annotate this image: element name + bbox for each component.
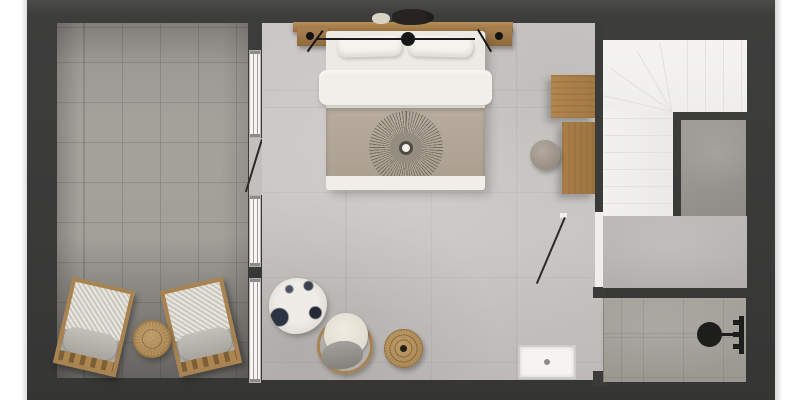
shower-tray <box>518 345 576 379</box>
plant-decor <box>392 9 434 25</box>
desk-upper-tier <box>551 75 595 118</box>
room-landing <box>681 120 746 216</box>
pendant-light <box>401 32 415 46</box>
window-section-1 <box>249 50 261 138</box>
page-margin-right <box>775 0 800 400</box>
wall-stub-upper <box>593 287 605 298</box>
partition-wall <box>595 23 603 213</box>
duvet-fold <box>319 70 492 105</box>
window-section-2 <box>249 195 261 267</box>
stair-treads-horizontal <box>603 118 673 214</box>
stair-treads-vertical <box>687 40 747 112</box>
vase-decor <box>372 13 390 24</box>
desk-lower-tier <box>562 122 595 194</box>
shower-drain <box>544 359 550 365</box>
sunburst-center <box>399 141 413 155</box>
room-bathroom <box>603 298 746 382</box>
bed-foot-sheet <box>326 176 485 190</box>
shower-mixer-knob <box>733 332 740 337</box>
window-section-3 <box>249 278 261 383</box>
nightstand-right-lamp <box>495 32 503 40</box>
nightstand-left-lamp <box>306 32 314 40</box>
hall-door-opening <box>595 212 603 288</box>
floor-plan-render <box>0 0 800 400</box>
jute-table-center <box>400 345 407 352</box>
page-margin-left <box>0 0 27 400</box>
shower-mixer-knob <box>733 320 740 325</box>
shower-mixer-knob <box>733 344 740 349</box>
headboard-light-cord <box>317 38 475 40</box>
desk-stool <box>530 140 560 170</box>
room-hallway <box>603 216 747 288</box>
terrace-side-table <box>133 320 171 358</box>
